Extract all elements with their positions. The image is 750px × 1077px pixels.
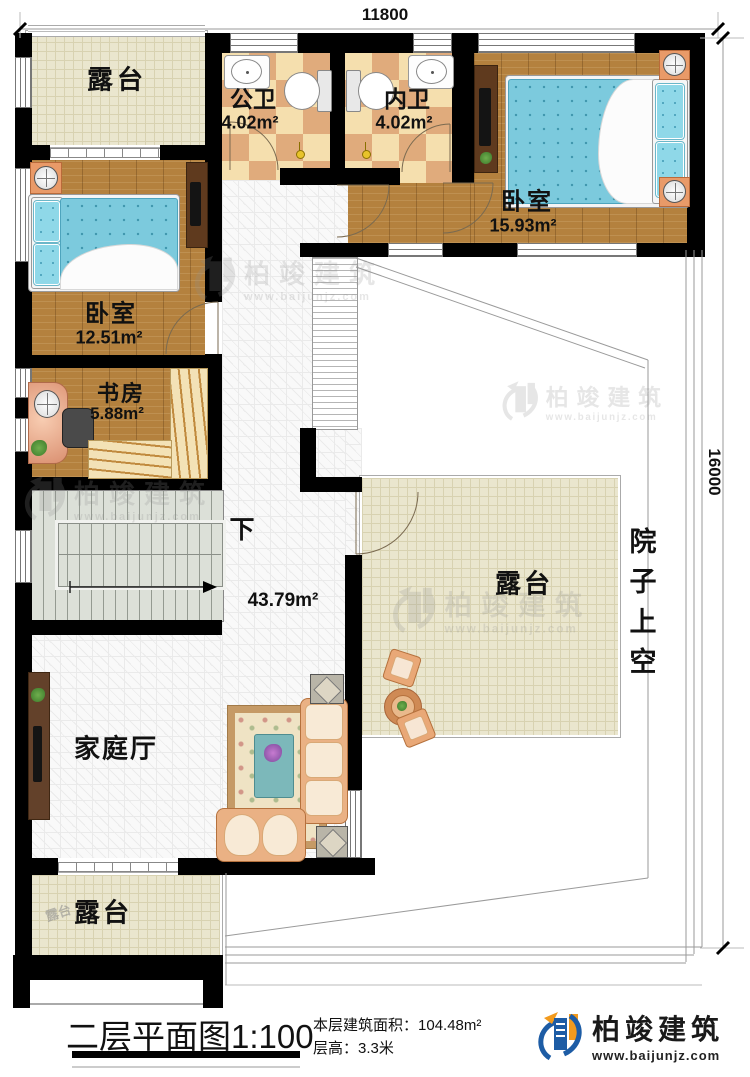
window-icon xyxy=(15,57,32,108)
terrace-bottom-label: 露台 xyxy=(74,893,132,930)
hall-area-label: 43.79m² xyxy=(248,590,319,612)
pillow-icon xyxy=(34,244,60,285)
window-icon xyxy=(15,530,32,583)
stair-down-label: 下 xyxy=(229,510,254,546)
desk-lamp-icon xyxy=(34,390,60,418)
brand-logo-icon xyxy=(536,1008,584,1064)
ensuite-bath-label: 内卫 xyxy=(384,80,430,114)
sofa-cushion-icon xyxy=(224,814,260,856)
wall xyxy=(28,355,205,368)
sofa-cushion-icon xyxy=(305,704,343,740)
wardrobe-icon xyxy=(170,368,208,479)
terrace-parapet xyxy=(28,25,205,37)
pillow-icon xyxy=(34,201,60,242)
floor-drain-icon xyxy=(296,150,305,159)
wall xyxy=(28,620,222,635)
wall xyxy=(443,243,517,257)
lamp-icon xyxy=(663,180,686,203)
window-icon xyxy=(230,33,298,53)
study-area: 5.88m² xyxy=(90,404,144,424)
parapet-wall xyxy=(203,955,223,1008)
watermark-url: www.baijunjz.com xyxy=(546,412,669,423)
wall xyxy=(298,33,413,53)
floor-area-value: 104.48m² xyxy=(418,1017,481,1034)
bedroom-left-label: 卧室 xyxy=(85,294,137,329)
sliding-door-icon xyxy=(58,862,178,872)
monitor-icon xyxy=(190,182,201,226)
drawing-title-text: 二层平面图 xyxy=(66,1018,231,1055)
courtyard-void-label: 院子上空 xyxy=(622,527,661,687)
terrace-right-label: 露台 xyxy=(495,564,553,601)
parapet-wall xyxy=(13,955,223,980)
toilet-icon xyxy=(284,72,320,110)
sofa-cushion-icon xyxy=(305,780,343,816)
family-hall-label: 家庭厅 xyxy=(74,729,158,766)
parapet-wall xyxy=(13,955,30,1008)
wall xyxy=(160,145,222,160)
bedroom-top-right-area: 15.93m² xyxy=(489,216,556,237)
wall xyxy=(300,477,362,492)
floor-area-line: 本层建筑面积：104.48m² xyxy=(313,1014,481,1037)
hallway-floor xyxy=(335,183,474,243)
lamp-icon xyxy=(663,53,686,76)
void-railing xyxy=(312,257,358,430)
sofa-cushion-icon xyxy=(262,814,298,856)
sliding-door-icon xyxy=(50,148,160,158)
window-icon xyxy=(413,33,452,53)
monitor-icon xyxy=(479,88,491,146)
brand-name: 柏竣建筑 xyxy=(592,1008,724,1048)
dimension-width: 11800 xyxy=(362,5,408,25)
floor-area-label: 本层建筑面积： xyxy=(313,1017,418,1034)
bedroom-left-area: 12.51m² xyxy=(75,328,142,349)
end-table-icon xyxy=(310,674,344,704)
floor-plan-canvas: 露台 公卫 4.02m² 内卫 4.02m² 卧室 15.93m² 卧室 12.… xyxy=(0,0,750,1077)
wall xyxy=(205,33,222,160)
end-table-icon xyxy=(316,826,348,858)
watermark-name: 柏竣建筑 xyxy=(546,379,669,412)
wall xyxy=(452,33,474,183)
pillow-icon xyxy=(656,84,684,139)
terrace-top-left-label: 露台 xyxy=(87,60,147,97)
parapet-edge-line xyxy=(30,1003,203,1005)
floor-height-label: 层高： xyxy=(313,1040,358,1057)
stair-railing xyxy=(58,523,223,587)
floor-height-value: 3.3米 xyxy=(358,1040,394,1057)
brand-block: 柏竣建筑 www.baijunjz.com xyxy=(536,1008,724,1064)
floor-drain-icon xyxy=(362,150,371,159)
ensuite-bath-area: 4.02m² xyxy=(375,113,432,134)
wall xyxy=(280,168,400,185)
floor-height-line: 层高：3.3米 xyxy=(313,1037,481,1060)
wardrobe-icon xyxy=(88,440,172,479)
title-underline-shadow xyxy=(72,1066,300,1068)
tv-icon xyxy=(33,726,42,782)
window-icon xyxy=(517,243,637,257)
lamp-icon xyxy=(34,166,58,190)
wall xyxy=(15,858,58,875)
title-underline xyxy=(72,1051,300,1058)
public-bath-label: 公卫 xyxy=(230,80,276,114)
window-icon xyxy=(388,243,443,257)
wall xyxy=(330,33,345,185)
bedroom-top-right-label: 卧室 xyxy=(501,182,553,217)
brand-watermark: 柏竣建筑 www.baijunjz.com xyxy=(500,378,669,424)
stair-mid-line xyxy=(58,554,221,555)
drawing-scale: 1:100 xyxy=(231,1018,314,1055)
floor-info: 本层建筑面积：104.48m² 层高：3.3米 xyxy=(313,1014,481,1060)
window-icon xyxy=(478,33,635,53)
brand-url: www.baijunjz.com xyxy=(592,1048,724,1063)
wall xyxy=(637,243,705,257)
wall xyxy=(15,33,32,57)
brand-logo-icon xyxy=(500,378,540,424)
public-bath-area: 4.02m² xyxy=(221,113,278,134)
dimension-height: 16000 xyxy=(704,448,724,495)
wall xyxy=(28,145,50,160)
wall xyxy=(300,428,316,477)
wall xyxy=(300,243,388,257)
sofa-cushion-icon xyxy=(305,742,343,778)
